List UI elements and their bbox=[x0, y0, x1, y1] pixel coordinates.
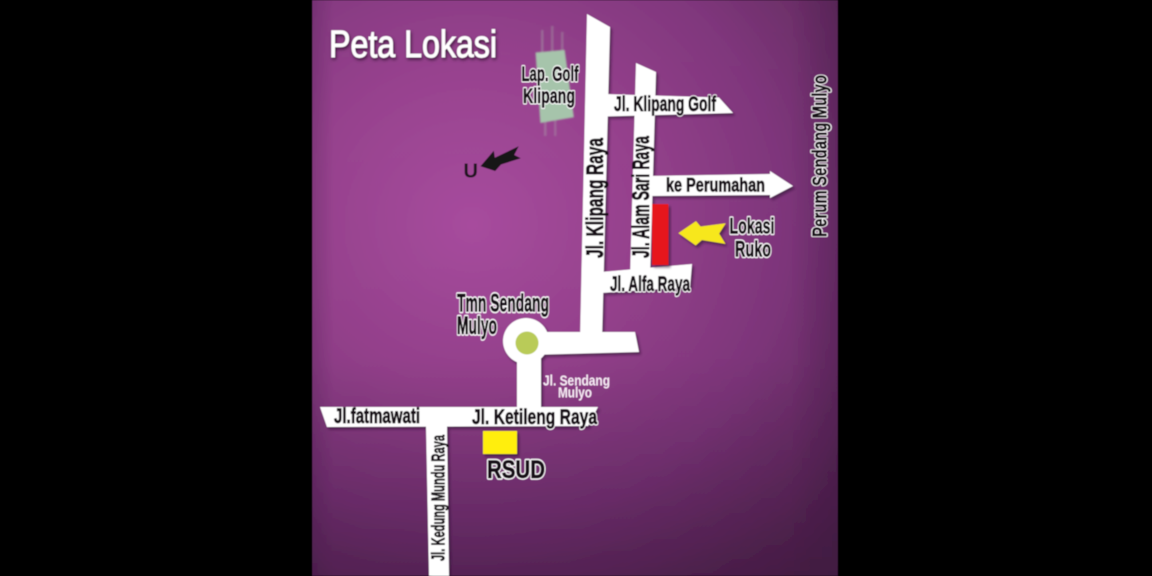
svg-text:Jl. Ketileng Raya: Jl. Ketileng Raya bbox=[472, 406, 597, 429]
svg-text:Jl. Alfa Raya: Jl. Alfa Raya bbox=[610, 273, 690, 296]
svg-text:Peta Lokasi: Peta Lokasi bbox=[329, 24, 497, 66]
svg-text:Jl.fatmawati: Jl.fatmawati bbox=[334, 405, 420, 428]
svg-text:ke Perumahan: ke Perumahan bbox=[666, 176, 765, 197]
svg-text:Ruko: Ruko bbox=[735, 237, 771, 262]
svg-text:U: U bbox=[464, 161, 478, 183]
svg-text:Lokasi: Lokasi bbox=[730, 214, 775, 239]
svg-text:Jl. Klipang Raya: Jl. Klipang Raya bbox=[582, 138, 609, 258]
svg-text:Jl. Klipang Golf: Jl. Klipang Golf bbox=[614, 93, 717, 116]
svg-text:Klipang: Klipang bbox=[523, 85, 575, 108]
svg-text:Perum Sendang Mulyo: Perum Sendang Mulyo bbox=[810, 75, 832, 237]
svg-text:RSUD: RSUD bbox=[487, 456, 545, 484]
svg-text:Lap. Golf: Lap. Golf bbox=[522, 63, 580, 86]
svg-text:Mulyo: Mulyo bbox=[457, 312, 497, 340]
svg-text:Jl. Alam Sari Raya: Jl. Alam Sari Raya bbox=[628, 136, 655, 258]
svg-text:Mulyo: Mulyo bbox=[558, 385, 592, 402]
svg-text:Jl. Kedung Mundu Raya: Jl. Kedung Mundu Raya bbox=[429, 434, 449, 561]
